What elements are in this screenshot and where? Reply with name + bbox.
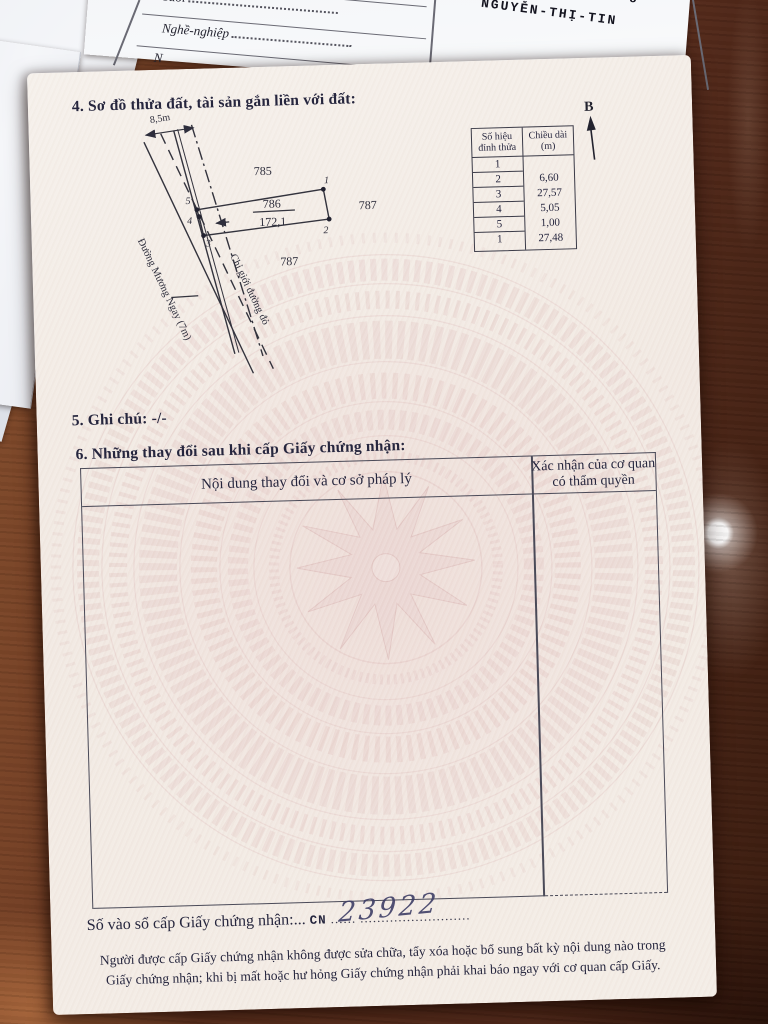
length-value-1: 6,60 (524, 170, 574, 186)
length-value-4: 1,00 (525, 215, 575, 231)
vertex-table-header-col1: Số hiệu đỉnh thửa (472, 128, 523, 158)
vertex-row-1: 2 (473, 172, 523, 188)
parcel-number-label: 786 (263, 196, 281, 210)
typed-text-line-2: NGUYỄN-THỊ-TIN (480, 0, 618, 29)
dotted-leader (189, 0, 339, 14)
form-field-occupation-label: Nghề-nghiệp (162, 20, 230, 40)
dimension-label: 8,5m (149, 112, 171, 126)
form-field-partial-label: N (153, 50, 163, 66)
form-field-age-label: Tuổi (162, 0, 186, 5)
form-field-partial: N (153, 50, 163, 67)
vertex-label-4: 4 (187, 216, 192, 227)
north-label: B (584, 100, 594, 116)
length-value-0 (523, 155, 573, 171)
changes-table-divider (531, 456, 545, 896)
neighbor-plot-right-label: 787 (359, 198, 377, 212)
vertex-table-col1: Số hiệu đỉnh thửa 1 2 3 4 5 1 (472, 128, 526, 251)
changes-table-col2-header-line1: Xác nhận của cơ quan (531, 456, 655, 475)
dimension-arrow (146, 128, 194, 135)
red-boundary-dashdot-line (191, 123, 262, 358)
form-field-age: Tuổi (162, 0, 339, 18)
access-arrow (216, 222, 229, 223)
length-value-5: 27,48 (526, 230, 576, 246)
vertex-row-4: 5 (474, 217, 524, 233)
vertex-label-2: 2 (323, 225, 328, 236)
vertex-table-header-col2: Chiều dài (m) (523, 126, 574, 156)
length-value-2: 27,57 (524, 185, 574, 201)
vertex-table-lengths: 6,60 27,57 5,05 1,00 27,48 (523, 155, 575, 246)
vertex-dot (327, 217, 332, 222)
neighbor-plot-bottom-label: 787 (280, 254, 298, 268)
vertex-label-3: 3 (205, 238, 211, 249)
register-label: Số vào sổ cấp Giấy chứng nhận:... (87, 911, 306, 934)
road-label: Đường Mương Ngay (7m) (135, 237, 193, 343)
changes-table-bottom-border (93, 895, 545, 909)
changes-table-bottom-border-dashed (545, 892, 667, 896)
form-left-border (113, 0, 140, 65)
vertex-label-1: 1 (324, 175, 329, 186)
vertex-row-5: 1 (475, 232, 525, 248)
form-field-occupation: Nghề-nghiệp (161, 20, 352, 51)
vertex-dot (321, 187, 326, 192)
register-prefix: CN (309, 913, 326, 927)
dotted-leader (232, 26, 353, 47)
north-arrow: B (578, 101, 606, 166)
changes-table-col2-header: Xác nhận của cơ quan có thẩm quyền (531, 453, 656, 494)
vertex-row-3: 4 (474, 202, 524, 218)
changes-table-col2-header-line2: có thẩm quyền (552, 473, 635, 491)
notice-paragraph: Người được cấp Giấy chứng nhận không đượ… (94, 935, 673, 991)
road-tick-mark (171, 296, 198, 298)
vertex-table: Số hiệu đỉnh thửa 1 2 3 4 5 1 Chiều dài … (471, 125, 577, 252)
plot-diagram: 8,5m 785 786 172,1 787 787 1 2 3 4 5 Đườ… (114, 104, 452, 393)
red-line-label: Chỉ giới đường đỏ (227, 252, 270, 326)
changes-table-col1-header: Nội dung thay đổi và cơ sở pháp lý (81, 457, 532, 508)
register-line: Số vào sổ cấp Giấy chứng nhận:... CN ...… (87, 906, 471, 935)
length-value-3: 5,05 (525, 200, 575, 216)
vertex-label-5: 5 (185, 196, 190, 207)
changes-table: Nội dung thay đổi và cơ sở pháp lý Xác n… (80, 452, 668, 909)
parcel-area-label: 172,1 (259, 214, 286, 229)
section5-heading: 5. Ghi chú: -/- (71, 410, 167, 431)
certificate-document: 4. Sơ đồ thửa đất, tài sản gắn liền với … (27, 55, 717, 1015)
neighbor-plot-top-label: 785 (254, 164, 272, 178)
vertex-row-0: 1 (473, 157, 523, 173)
vertex-row-2: 3 (473, 187, 523, 203)
